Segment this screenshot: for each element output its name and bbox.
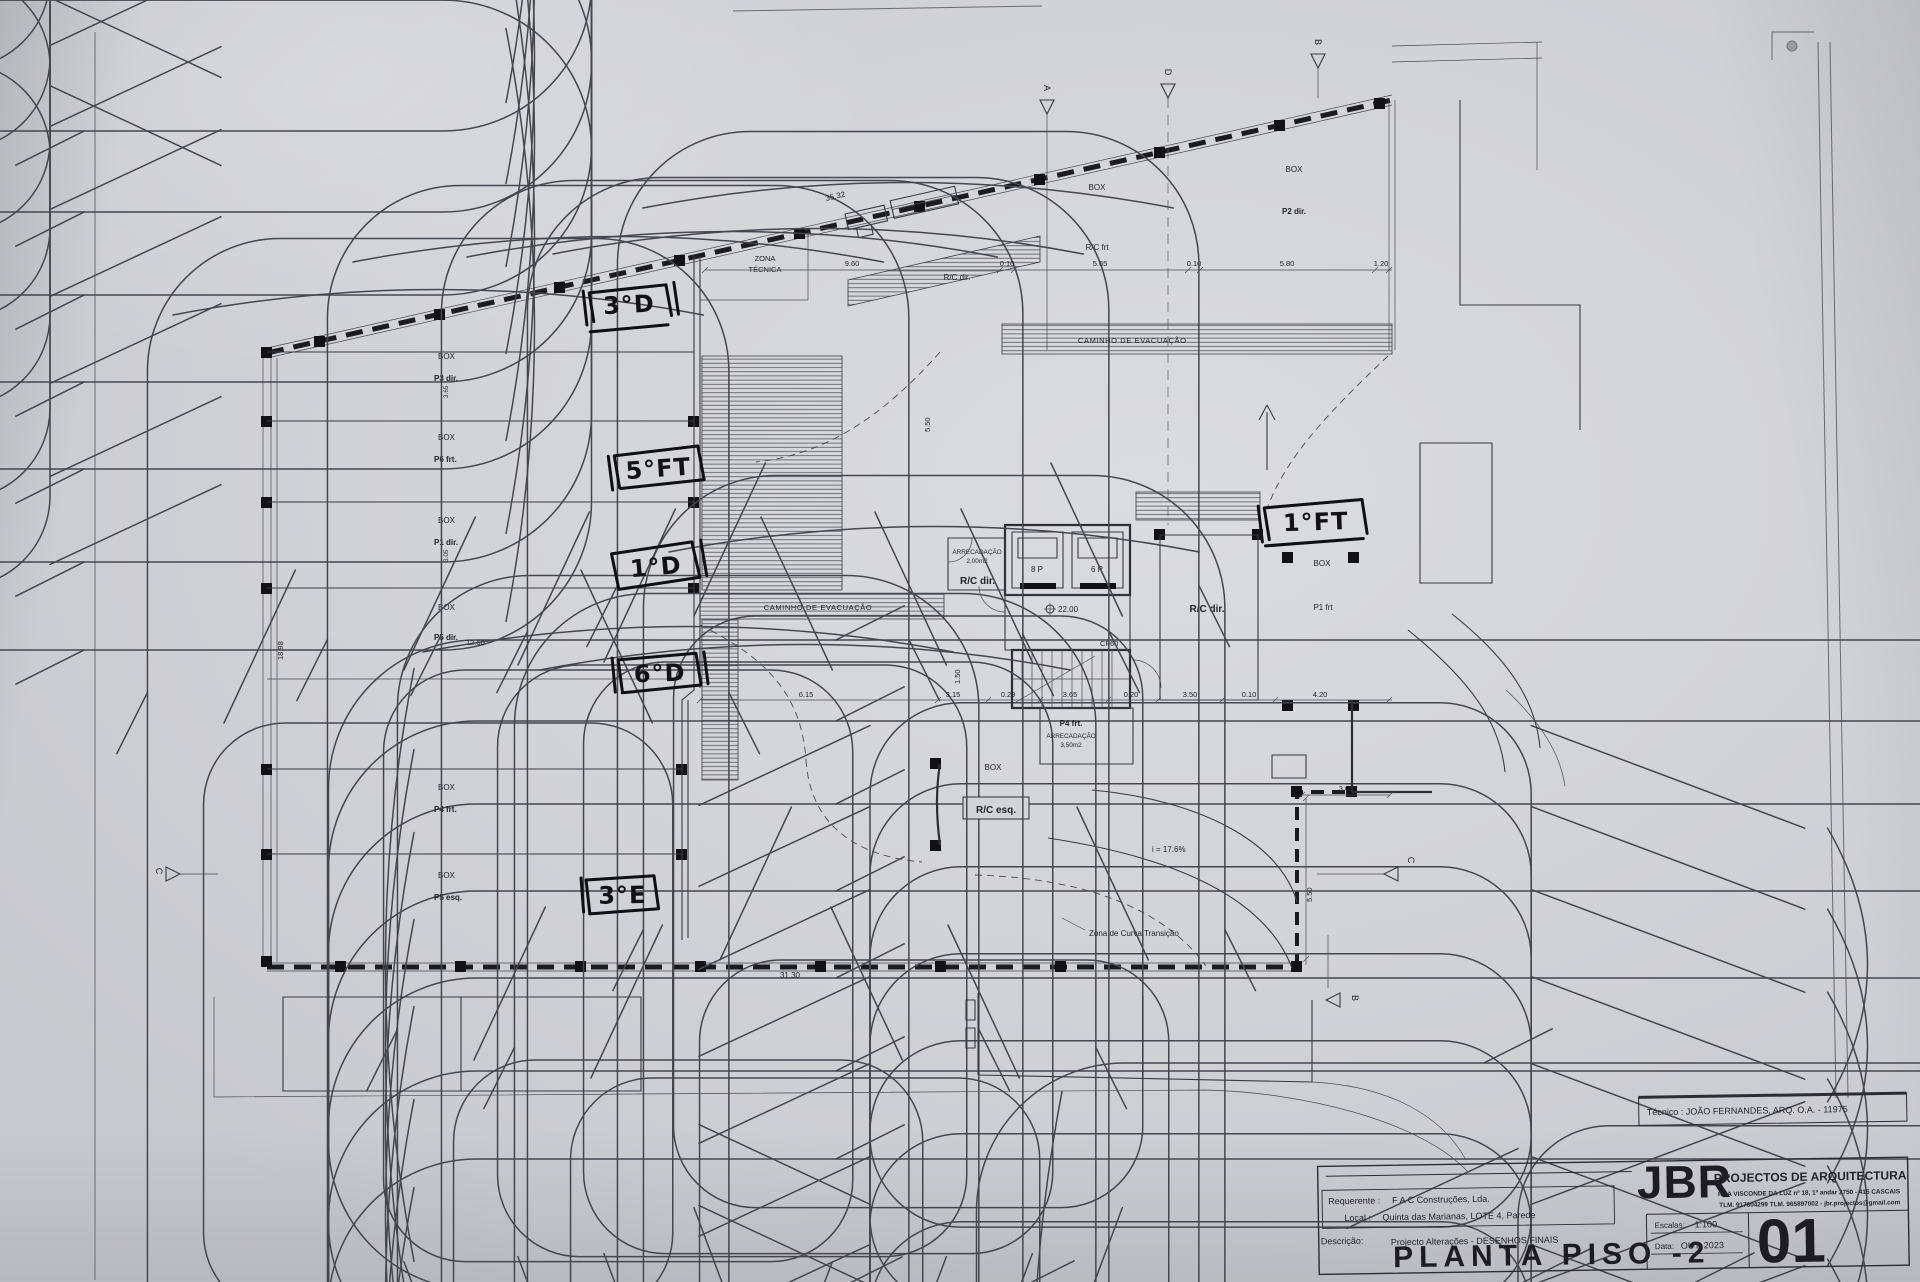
stair-elevator-core: 8 P 6 P 22.00 CF60 P4 frt. ARRECADAÇÃO 3… (948, 525, 1161, 764)
dim-label: 1.50 (953, 669, 962, 684)
escala-value: 1:100 (1694, 1219, 1717, 1229)
sheet-frame (95, 6, 1848, 1280)
ramp-slope-label: i = 17.6% (1152, 845, 1186, 854)
firm-tagline: PROJECTOS DE ARQUITECTURA (1714, 1168, 1907, 1185)
handwritten-5ft: 5°FT (608, 446, 704, 490)
ramp-direction-arrow (1259, 405, 1275, 470)
box-label: BOX (438, 352, 456, 361)
tecnico-line: Técnico : JOÃO FERNANDES, ARQ. O.A. - 11… (1647, 1104, 1848, 1117)
firm-address: RUA VISCONDE DA LUZ nº 18, 1º andar 2750… (1718, 1188, 1901, 1198)
box-label: BOX (438, 871, 456, 880)
storage-label: ARRECADAÇÃO (1046, 731, 1095, 740)
box-label: BOX (1286, 165, 1304, 174)
stall-label: P1 dir. (434, 538, 458, 547)
section-marker-d: D (1163, 69, 1173, 76)
svg-text:6°D: 6°D (633, 659, 686, 689)
handwritten-3d: 3°D (583, 282, 679, 332)
box-label: BOX (1314, 559, 1332, 568)
box-label: BOX (1089, 183, 1107, 192)
escala-label: Escalas: (1654, 1221, 1684, 1230)
dim-label: 18.98 (276, 641, 285, 660)
stall-label: P5 esq. (434, 893, 462, 902)
dim-label: 0.20 (1124, 690, 1139, 699)
svg-text:3°D: 3°D (602, 289, 655, 320)
box-label: BOX (438, 783, 456, 792)
stall-label-p1-frt: P1 frt (1313, 603, 1333, 612)
svg-text:3°E: 3°E (598, 881, 647, 910)
dim-label: 3.50 (1183, 690, 1198, 699)
dim-label: 5.50 (923, 417, 932, 432)
dim-label: 3.15 (946, 690, 961, 699)
section-marker-c2: C (1406, 857, 1416, 864)
caminho-evacuacao-label2: CAMINHO DE EVACUAÇÃO (764, 603, 873, 612)
unit-label-rc-frt: R/C frt (1085, 243, 1109, 252)
pin-hole (1787, 41, 1797, 51)
svg-text:1°D: 1°D (629, 551, 683, 583)
box-label: BOX (438, 516, 456, 525)
dim-label: 5.80 (1280, 259, 1295, 268)
unit-label-rc-dir-top: R/C dir. (944, 273, 971, 282)
caminho-evacuacao-label: CAMINHO DE EVACUAÇÃO (1078, 336, 1187, 345)
stall-label-p2-dir: P2 dir. (1282, 207, 1306, 216)
stall-label: P3 dir. (434, 374, 458, 383)
dim-label: 31.30 (780, 971, 801, 980)
dim-label: 0.29 (1001, 690, 1016, 699)
dim-label: 0.10 (1000, 259, 1015, 268)
dim-label: 0.10 (1242, 690, 1257, 699)
stall-label: P6 frt. (434, 455, 457, 464)
box-label: BOX (438, 433, 456, 442)
zona-tecnica-label2: TÉCNICA (749, 265, 782, 274)
unit-label-rc-dir-stall: R/C dir. (1189, 604, 1224, 615)
elevator-capacity-label: 8 P (1031, 565, 1043, 574)
storage-label-area: 3,50m2 (1060, 742, 1082, 749)
handwritten-1d: 1°D (611, 540, 707, 590)
handwritten-3e: 3°E (581, 876, 659, 914)
level-value: 22.00 (1058, 605, 1079, 614)
section-marker-a: A (1042, 85, 1052, 91)
data-value: OUT. 2023 (1681, 1240, 1724, 1251)
dim-label: 5.50 (1305, 887, 1314, 902)
section-marker-b2: B (1350, 995, 1360, 1001)
stall-dim: 3.05 (443, 549, 450, 562)
requerente-value: F A C Construções, Lda. (1392, 1194, 1490, 1206)
stall-dim: 3.65 (443, 385, 450, 398)
storage-label: ARRECADAÇÃO (952, 547, 1001, 556)
requerente-label: Requerente : (1328, 1195, 1380, 1206)
sheet-number: 01 (1756, 1206, 1826, 1276)
svg-text:1°FT: 1°FT (1283, 507, 1349, 537)
dim-label: 35.32 (824, 190, 846, 203)
dim-label: 5.65 (1093, 259, 1108, 268)
unit-label-rc-dir: R/C dir. (960, 576, 995, 587)
dim-label: 4.20 (1313, 690, 1328, 699)
dim-label: 9.60 (845, 259, 860, 268)
local-value: Quinta das Marianas, LOTE 4, Parede (1382, 1210, 1535, 1222)
unit-label-rc-esq: R/C esq. (976, 805, 1016, 816)
dim-label: 6.15 (799, 690, 814, 699)
dim-label: 1.20 (1374, 259, 1389, 268)
section-marker-c: C (154, 868, 164, 875)
stall-label: P4 frt. (1060, 719, 1083, 728)
zona-tecnica-label: ZONA (755, 254, 776, 263)
handwritten-1ft: 1°FT (1258, 499, 1367, 546)
local-label: Local : (1344, 1213, 1371, 1223)
box-label: BOX (985, 763, 1003, 772)
dim-label: 3.00 (1339, 784, 1354, 793)
descricao-label: Descrição: (1321, 1236, 1364, 1247)
dim-label: 3.65 (1063, 690, 1078, 699)
stall-label: P4 frt. (434, 805, 457, 814)
svg-text:5°FT: 5°FT (625, 453, 692, 485)
section-marker-b: B (1313, 39, 1323, 45)
floor-plan-drawing: ZONA TÉCNICA BOX P3 dir. 3.65 BOX P6 frt… (0, 0, 1920, 1282)
data-label: Data: (1655, 1242, 1674, 1251)
